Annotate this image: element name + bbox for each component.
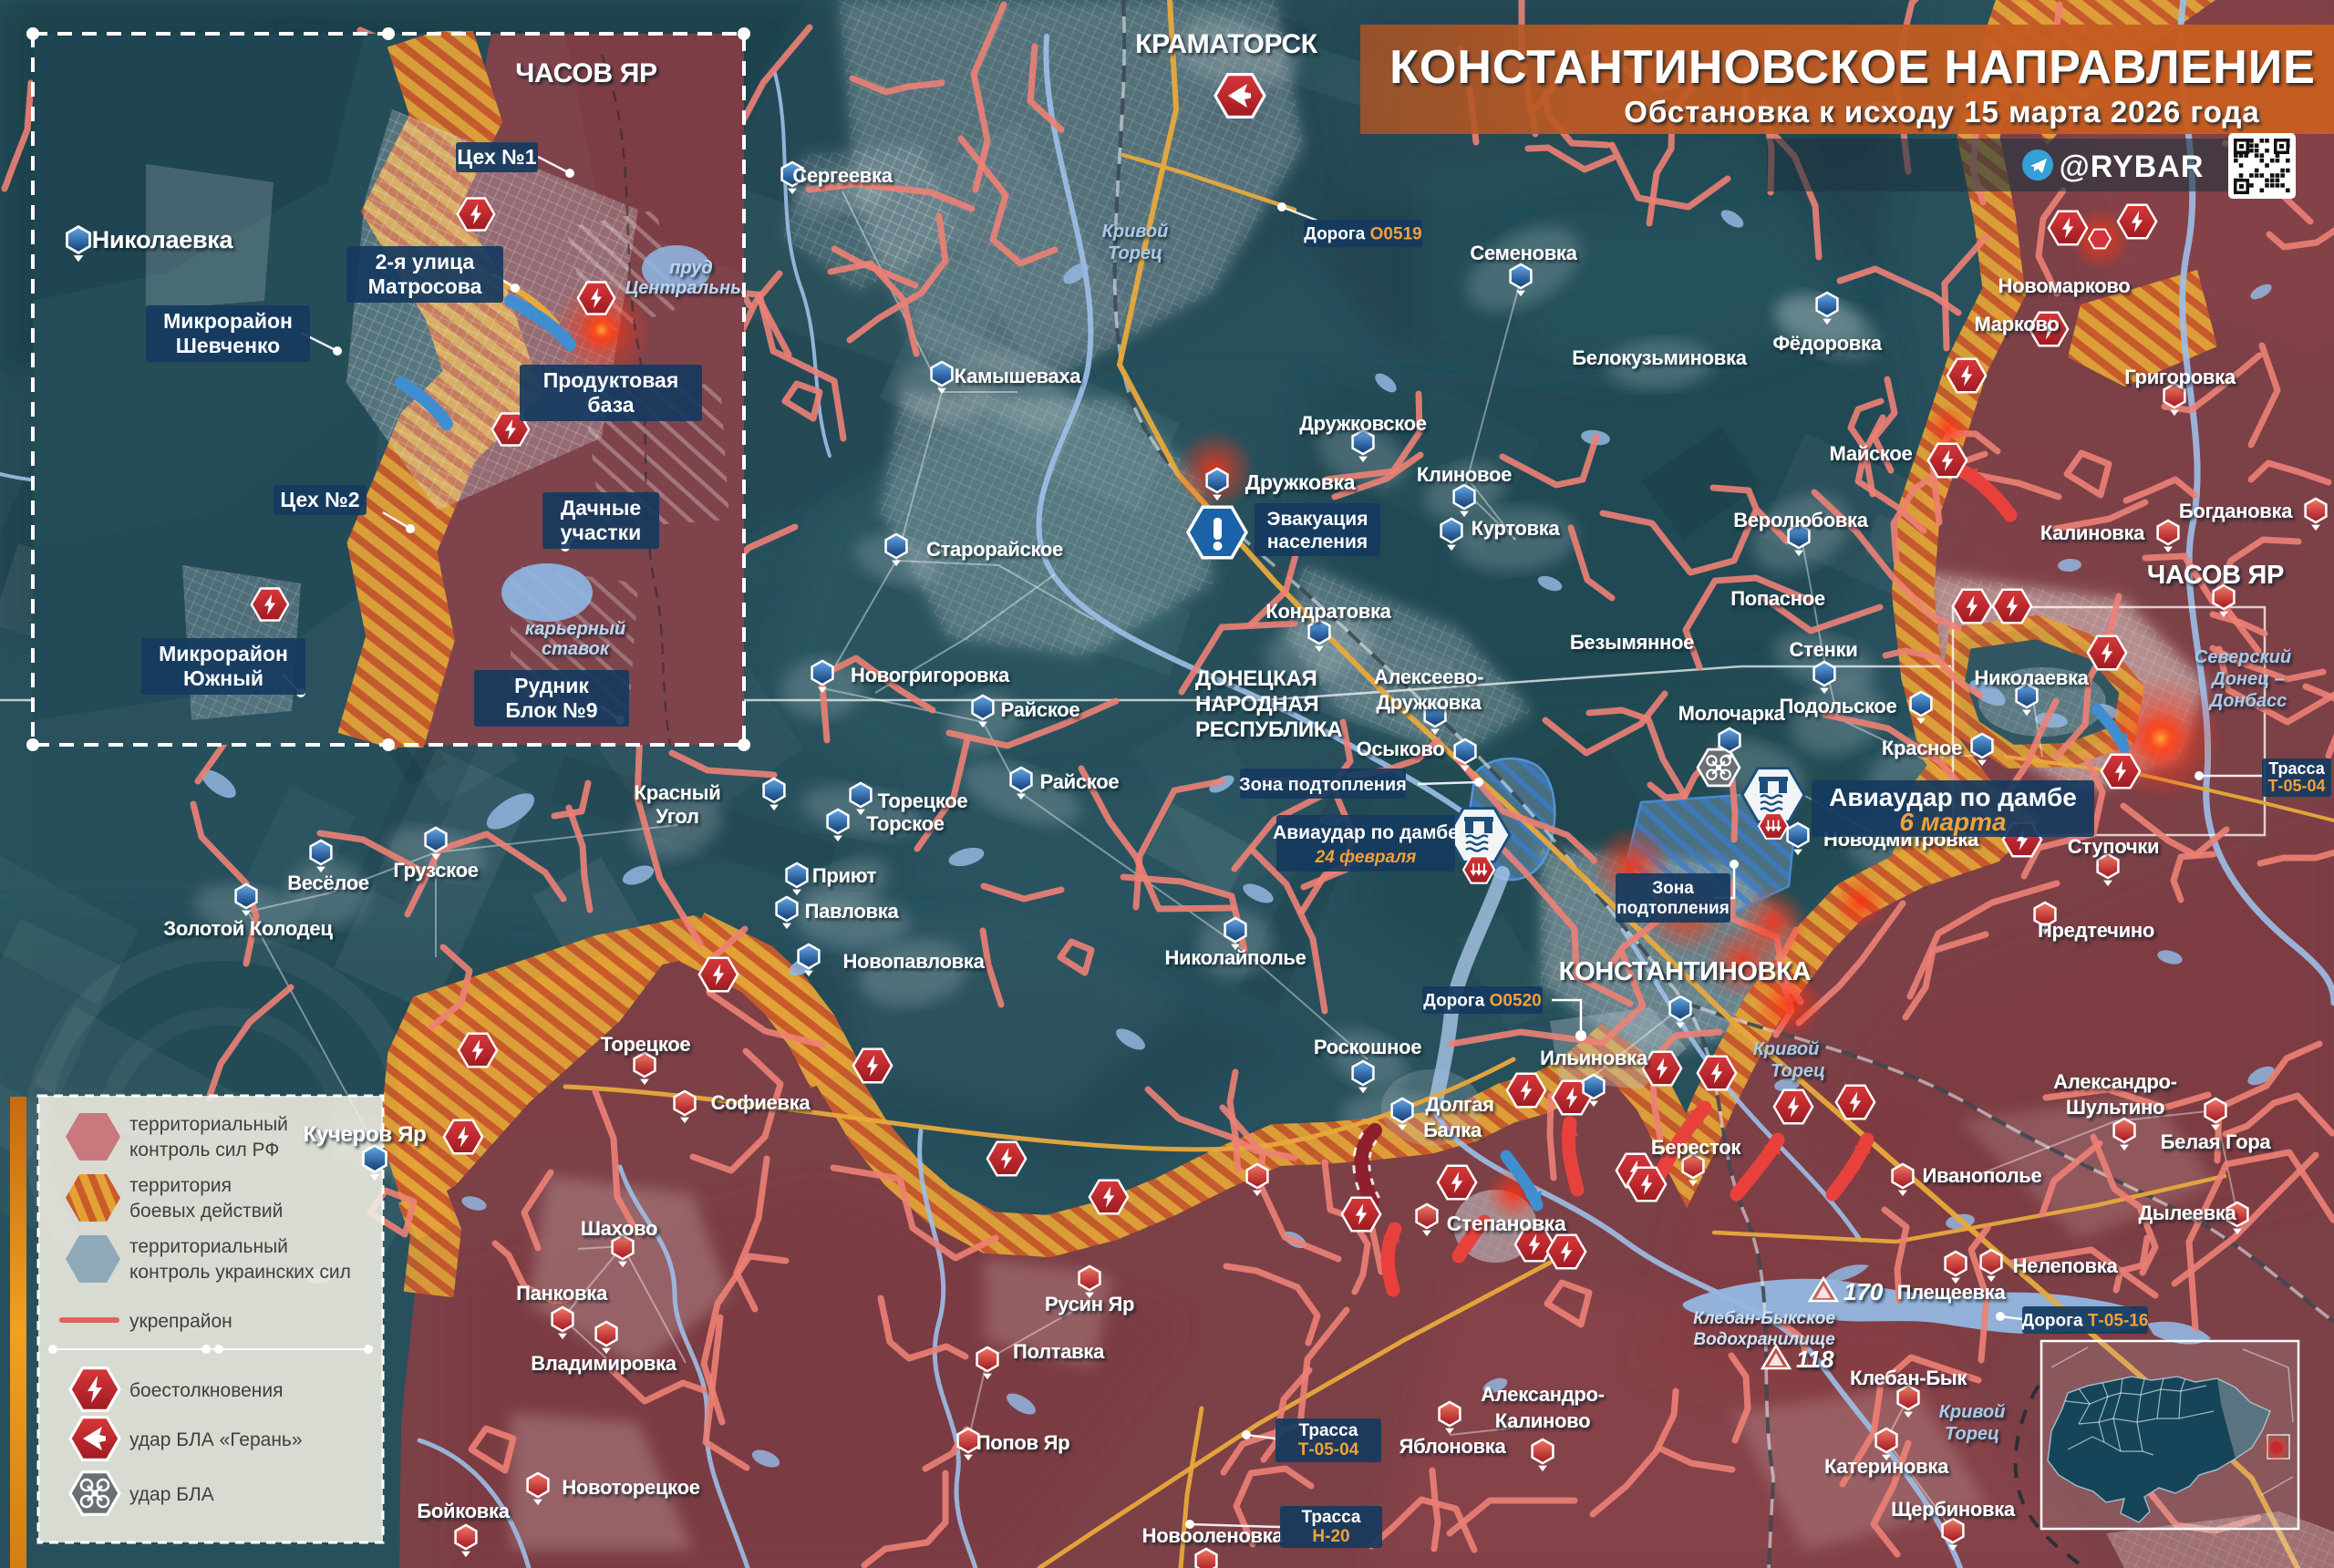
- svg-text:карьерный: карьерный: [525, 619, 625, 639]
- svg-text:Долгая: Долгая: [1425, 1093, 1493, 1116]
- svg-text:Клебан-Быкское: Клебан-Быкское: [1693, 1309, 1835, 1328]
- svg-text:Т-05-04: Т-05-04: [2267, 777, 2325, 795]
- svg-text:Дружковское: Дружковское: [1299, 412, 1426, 435]
- svg-text:Матросова: Матросова: [368, 274, 482, 298]
- svg-text:Новомарково: Новомарково: [1998, 274, 2131, 297]
- svg-text:ЧАСОВ ЯР: ЧАСОВ ЯР: [2147, 561, 2284, 590]
- svg-text:Блок №9: Блок №9: [505, 698, 597, 722]
- svg-text:Плещеевка: Плещеевка: [1897, 1281, 2007, 1304]
- svg-text:Богдановка: Богдановка: [2179, 500, 2293, 522]
- svg-text:Торецкое: Торецкое: [601, 1033, 691, 1056]
- svg-text:Кривой: Кривой: [1753, 1039, 1820, 1059]
- svg-text:Новоторецкое: Новоторецкое: [562, 1476, 699, 1499]
- svg-text:118: 118: [1796, 1346, 1834, 1373]
- svg-text:ставок: ставок: [542, 639, 610, 659]
- svg-text:Торское: Торское: [866, 812, 945, 835]
- svg-text:Н-20: Н-20: [1312, 1527, 1349, 1546]
- svg-text:Бойковка: Бойковка: [417, 1500, 510, 1522]
- svg-text:Торец: Торец: [1108, 243, 1162, 263]
- svg-text:Донец –: Донец –: [2210, 669, 2284, 689]
- svg-text:Безымянное: Безымянное: [1570, 631, 1694, 654]
- svg-text:Рудник: Рудник: [514, 674, 589, 697]
- svg-text:Торец: Торец: [1945, 1424, 1999, 1444]
- svg-text:Кучеров Яр: Кучеров Яр: [304, 1122, 427, 1147]
- svg-text:Дружковка: Дружковка: [1376, 691, 1482, 714]
- svg-text:Молочарка: Молочарка: [1678, 702, 1786, 725]
- svg-text:Зона: Зона: [1652, 879, 1694, 898]
- svg-text:Грузское: Грузское: [393, 859, 478, 882]
- svg-text:Торецкое: Торецкое: [878, 789, 968, 812]
- svg-text:Иванополье: Иванополье: [1923, 1164, 2042, 1187]
- svg-text:территориальный: территориальный: [129, 1236, 288, 1257]
- svg-text:Куртовка: Куртовка: [1472, 517, 1561, 540]
- svg-text:Красное: Красное: [1882, 737, 1962, 759]
- svg-text:Щербиновка: Щербиновка: [1891, 1498, 2016, 1521]
- svg-text:Клиновое: Клиновое: [1417, 463, 1512, 486]
- svg-text:Катериновка: Катериновка: [1824, 1455, 1949, 1478]
- svg-text:ДОНЕЦКАЯ: ДОНЕЦКАЯ: [1195, 666, 1317, 691]
- svg-text:Микрорайон: Микрорайон: [163, 309, 293, 333]
- svg-text:Цех №2: Цех №2: [280, 488, 359, 511]
- svg-text:Весёлое: Весёлое: [287, 872, 369, 894]
- svg-text:Северский: Северский: [2195, 647, 2291, 667]
- svg-text:Николаевка: Николаевка: [1974, 666, 2089, 689]
- svg-text:удар БЛА: удар БЛА: [129, 1484, 214, 1505]
- svg-text:Предтечино: Предтечино: [2038, 919, 2154, 942]
- svg-text:Майское: Майское: [1830, 442, 1913, 465]
- svg-text:пруд: пруд: [669, 258, 712, 278]
- svg-text:Т-05-04: Т-05-04: [1298, 1440, 1359, 1460]
- svg-text:Калиново: Калиново: [1495, 1409, 1590, 1432]
- svg-text:КОНСТАНТИНОВКА: КОНСТАНТИНОВКА: [1559, 957, 1812, 986]
- svg-text:Камышеваха: Камышеваха: [955, 365, 1082, 387]
- svg-text:Шахово: Шахово: [581, 1217, 657, 1240]
- svg-text:контроль сил РФ: контроль сил РФ: [129, 1140, 279, 1161]
- svg-text:Нелеповка: Нелеповка: [2013, 1254, 2119, 1277]
- svg-text:2-я улица: 2-я улица: [376, 250, 475, 273]
- svg-text:Новопавловка: Новопавловка: [842, 950, 985, 973]
- svg-text:Трасса: Трасса: [1302, 1508, 1361, 1527]
- svg-text:Павловка: Павловка: [805, 900, 900, 923]
- svg-text:Трасса: Трасса: [1299, 1421, 1358, 1440]
- svg-text:Кривой: Кривой: [1102, 222, 1169, 242]
- svg-text:Софиевка: Софиевка: [711, 1091, 811, 1114]
- svg-text:Дорога Т-05-16: Дорога Т-05-16: [2022, 1312, 2149, 1331]
- svg-text:Алексеево-: Алексеево-: [1374, 665, 1483, 688]
- svg-text:Белая Гора: Белая Гора: [2161, 1130, 2272, 1153]
- svg-text:база: база: [587, 393, 634, 417]
- svg-text:Обстановка к исходу 15 марта 2: Обстановка к исходу 15 марта 2026 года: [1624, 95, 2259, 129]
- svg-text:Николайполье: Николайполье: [1164, 946, 1306, 969]
- svg-text:@RYBAR: @RYBAR: [2060, 150, 2205, 184]
- svg-text:Райское: Райское: [1040, 770, 1120, 793]
- svg-text:Продуктовая: Продуктовая: [543, 368, 679, 392]
- svg-text:Дылеевка: Дылеевка: [2139, 1202, 2237, 1224]
- svg-text:Степановка: Степановка: [1447, 1212, 1566, 1235]
- svg-text:РЕСПУБЛИКА: РЕСПУБЛИКА: [1195, 717, 1342, 742]
- svg-text:территориальный: территориальный: [129, 1114, 288, 1135]
- svg-text:Новооленовка: Новооленовка: [1142, 1524, 1285, 1547]
- svg-text:6 марта: 6 марта: [1899, 808, 2006, 836]
- svg-text:подтопления: подтопления: [1616, 899, 1730, 918]
- svg-text:Веролюбовка: Веролюбовка: [1733, 509, 1868, 531]
- svg-text:Попов Яр: Попов Яр: [976, 1431, 1069, 1454]
- svg-text:ЧАСОВ ЯР: ЧАСОВ ЯР: [515, 58, 656, 88]
- svg-text:Авиаудар по дамбе: Авиаудар по дамбе: [1273, 822, 1459, 843]
- svg-text:Русин Яр: Русин Яр: [1045, 1293, 1134, 1315]
- svg-text:Подольское: Подольское: [1780, 695, 1897, 717]
- svg-text:Донбасс: Донбасс: [2208, 691, 2288, 711]
- svg-text:Эвакуация: Эвакуация: [1267, 509, 1368, 530]
- svg-text:населения: населения: [1267, 531, 1368, 552]
- svg-text:Микрорайон: Микрорайон: [159, 642, 288, 665]
- svg-text:Старорайское: Старорайское: [926, 538, 1063, 561]
- svg-text:Владимировка: Владимировка: [531, 1352, 676, 1375]
- svg-text:Дорога О0519: Дорога О0519: [1304, 225, 1421, 244]
- svg-text:24 февраля: 24 февраля: [1315, 848, 1417, 867]
- svg-text:Панковка: Панковка: [516, 1282, 608, 1305]
- svg-text:Дружковка: Дружковка: [1245, 470, 1356, 494]
- svg-text:Новогригоровка: Новогригоровка: [851, 664, 1010, 686]
- svg-text:укрепрайон: укрепрайон: [129, 1311, 232, 1332]
- svg-text:Дорога О0520: Дорога О0520: [1423, 992, 1541, 1011]
- svg-text:Марково: Марково: [1974, 313, 2059, 335]
- svg-text:Приют: Приют: [812, 864, 877, 887]
- svg-text:Полтавка: Полтавка: [1013, 1340, 1105, 1363]
- svg-text:Балка: Балка: [1423, 1119, 1482, 1141]
- svg-text:КРАМАТОРСК: КРАМАТОРСК: [1135, 29, 1318, 59]
- svg-text:Райское: Райское: [1001, 698, 1080, 721]
- svg-text:Александро-: Александро-: [1481, 1383, 1604, 1406]
- svg-text:Золотой Колодец: Золотой Колодец: [163, 917, 333, 940]
- svg-text:Зона подтопления: Зона подтопления: [1239, 775, 1407, 795]
- svg-text:Южный: Южный: [183, 666, 263, 690]
- svg-text:Угол: Угол: [656, 805, 698, 828]
- svg-text:боевых действий: боевых действий: [129, 1201, 283, 1222]
- svg-text:Кривой: Кривой: [1939, 1402, 2006, 1422]
- svg-text:КОНСТАНТИНОВСКОЕ НАПРАВЛЕНИЕ: КОНСТАНТИНОВСКОЕ НАПРАВЛЕНИЕ: [1389, 41, 2316, 94]
- svg-text:Яблоновка: Яблоновка: [1399, 1435, 1507, 1458]
- svg-text:Николаевка: Николаевка: [92, 226, 234, 253]
- svg-text:Красный: Красный: [635, 781, 721, 804]
- svg-text:Сергеевка: Сергеевка: [792, 164, 893, 187]
- svg-text:Кондратовка: Кондратовка: [1265, 600, 1391, 623]
- svg-text:НАРОДНАЯ: НАРОДНАЯ: [1195, 692, 1318, 717]
- svg-text:Трасса: Трасса: [2268, 759, 2326, 778]
- svg-text:Фёдоровка: Фёдоровка: [1772, 332, 1882, 355]
- svg-text:Цех №1: Цех №1: [457, 145, 536, 169]
- svg-text:боестолкновения: боестолкновения: [129, 1380, 284, 1401]
- svg-text:участки: участки: [561, 521, 642, 544]
- svg-text:Шевченко: Шевченко: [176, 334, 280, 357]
- svg-text:Семеновка: Семеновка: [1470, 242, 1577, 264]
- svg-text:170: 170: [1843, 1278, 1884, 1305]
- svg-text:Ступочки: Ступочки: [2068, 835, 2160, 858]
- svg-text:Белокузьминовка: Белокузьминовка: [1572, 346, 1747, 369]
- svg-text:Роскошное: Роскошное: [1314, 1036, 1421, 1058]
- svg-text:Григоровка: Григоровка: [2124, 366, 2236, 388]
- svg-text:территория: территория: [129, 1175, 232, 1196]
- svg-text:контроль украинских сил: контроль украинских сил: [129, 1262, 351, 1283]
- svg-text:Торец: Торец: [1771, 1061, 1825, 1081]
- svg-text:Дачные: Дачные: [561, 496, 641, 520]
- svg-text:Центральный: Центральный: [625, 278, 758, 298]
- svg-text:Шультино: Шультино: [2066, 1096, 2164, 1119]
- svg-text:Клебан-Бык: Клебан-Бык: [1850, 1367, 1967, 1389]
- svg-text:удар БЛА «Герань»: удар БЛА «Герань»: [129, 1429, 303, 1450]
- svg-text:Стенки: Стенки: [1790, 638, 1858, 661]
- svg-text:Осыково: Осыково: [1357, 738, 1445, 760]
- svg-text:Попасное: Попасное: [1730, 587, 1825, 610]
- svg-text:Александро-: Александро-: [2053, 1070, 2176, 1093]
- svg-text:Ильиновка: Ильиновка: [1540, 1047, 1648, 1069]
- svg-text:Калиновка: Калиновка: [2040, 521, 2145, 544]
- svg-text:Бересток: Бересток: [1651, 1136, 1741, 1159]
